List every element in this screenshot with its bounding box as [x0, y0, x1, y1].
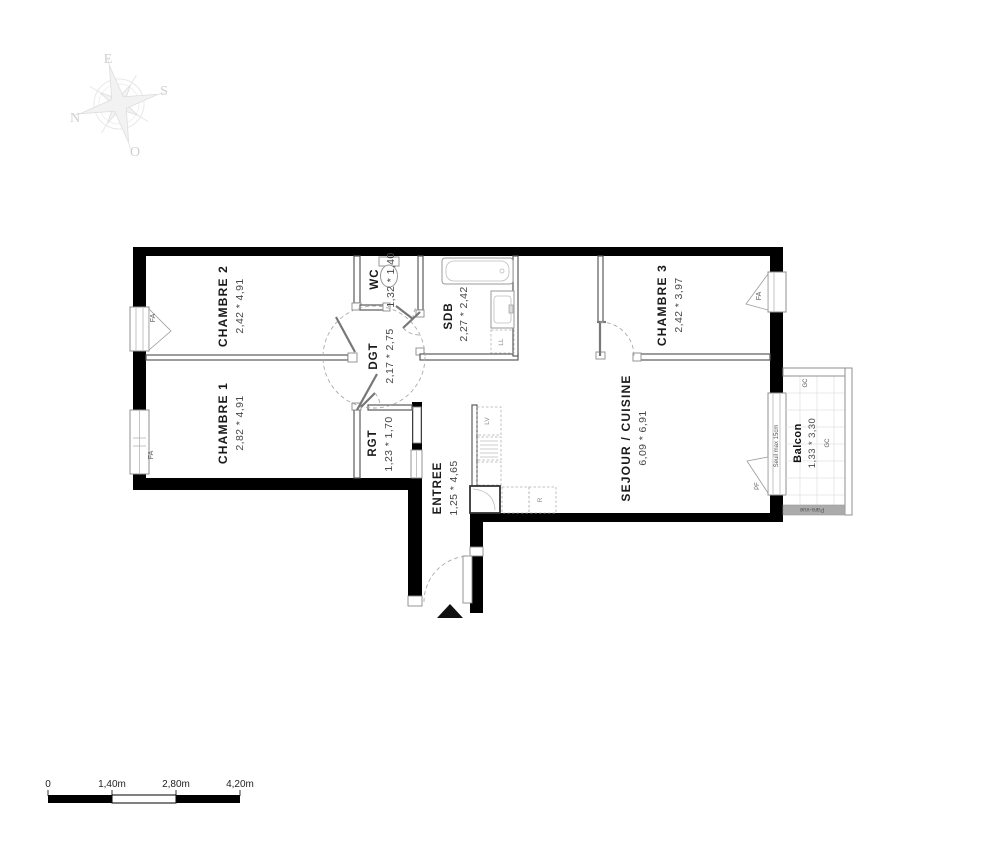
compass-north-label: N — [70, 111, 80, 126]
french-window-sejour: PF Seuil max 15cm — [747, 393, 786, 495]
privacy-screen-label: Pare-vue — [799, 506, 824, 512]
room-rgt-name: RGT — [367, 429, 379, 456]
balcony-rail-top — [783, 368, 852, 376]
room-chambre3-name: CHAMBRE 3 — [655, 264, 669, 346]
room-wc-dims: 1,32 * 1,40 — [385, 252, 397, 307]
scale-tick-label: 2,80m — [162, 779, 190, 790]
entrance-door-leaf — [463, 556, 472, 603]
room-entree-name: ENTREE — [432, 462, 444, 515]
room-chambre2-name: CHAMBRE 2 — [216, 265, 230, 347]
compass-east-label: E — [104, 52, 113, 67]
scale-tick-label: 1,40m — [98, 779, 126, 790]
window-label: FA — [148, 450, 155, 459]
room-balcon-name: Balcon — [792, 423, 804, 463]
compass-west-label: O — [130, 145, 140, 160]
kitchen-sink-icon — [470, 486, 500, 513]
washing-machine-label: LL — [498, 338, 505, 346]
room-balcon-dims: 1,33 * 3,30 — [807, 418, 818, 468]
floor-plan-page: E S N O — [0, 0, 1000, 857]
scale-segment — [48, 795, 112, 803]
wall-chambre3-west — [598, 256, 603, 322]
room-entree-dims: 1,25 * 4,65 — [448, 460, 460, 515]
room-chambre3-dims: 2,42 * 3,97 — [673, 277, 685, 332]
room-chambre1-name: CHAMBRE 1 — [216, 382, 230, 464]
window-chambre1: FA — [130, 410, 155, 474]
wall-chambre2-wc — [354, 256, 360, 303]
window-chambre2: FA — [130, 307, 171, 351]
room-sdb-dims: 2,27 * 2,42 — [458, 286, 470, 341]
scale-bar: 0 1,40m 2,80m 4,20m — [45, 779, 254, 803]
window-chambre3: FA — [746, 272, 786, 312]
scale-segment — [112, 795, 176, 803]
room-dgt-dims: 2,17 * 2,75 — [384, 328, 396, 383]
compass-south-label: S — [160, 84, 168, 99]
window-label: FA — [756, 291, 763, 300]
compass-rose-icon: E S N O — [62, 47, 176, 161]
wall-chambre1-chambre2 — [146, 355, 348, 360]
wall-sdb-west — [418, 256, 423, 310]
scale-segment — [176, 795, 240, 803]
fridge-label: R — [537, 497, 544, 502]
entrance-arrow-icon — [437, 604, 463, 618]
room-chambre2-dims: 2,42 * 4,91 — [234, 278, 246, 333]
room-wc-name: WC — [369, 268, 381, 289]
wall-entree-cuisine — [472, 405, 477, 487]
door-chambre2 — [336, 317, 355, 352]
room-sejour-dims: 6,09 * 6,91 — [637, 410, 649, 465]
room-chambre1-dims: 2,82 * 4,91 — [234, 395, 246, 450]
counter-box — [477, 462, 501, 485]
floor-plan-drawing: E S N O — [0, 0, 1000, 857]
scale-tick-label: 0 — [45, 779, 51, 790]
wall-chambre3-south — [640, 354, 770, 360]
duct-panel — [413, 407, 421, 443]
hob-box — [477, 437, 501, 460]
room-dgt-name: DGT — [368, 342, 380, 369]
french-window-label: PF — [755, 482, 761, 490]
door-wc — [396, 306, 413, 319]
threshold-label: Seuil max 15cm — [774, 425, 780, 468]
room-sdb-name: SDB — [443, 302, 455, 329]
counter-box — [502, 487, 529, 513]
scale-tick-label: 4,20m — [226, 779, 254, 790]
kitchen-fixtures: LV R — [470, 407, 556, 513]
room-rgt-dims: 1,23 * 1,70 — [383, 416, 395, 471]
wall-chambre1-rgt — [354, 410, 360, 478]
room-labels: CHAMBRE 2 2,42 * 4,91 CHAMBRE 1 2,82 * 4… — [216, 252, 685, 515]
window-label: FA — [150, 313, 157, 322]
gc-label: GC — [825, 438, 831, 448]
wall-sdb-south — [420, 354, 518, 360]
room-sejour-name: SEJOUR / CUISINE — [619, 374, 633, 501]
bathtub-icon — [442, 258, 513, 284]
gc-label: GC — [803, 378, 809, 388]
balcony: GC Balcon 1,33 * 3,30 GC Pare-vue — [783, 368, 852, 515]
dishwasher-label: LV — [484, 417, 491, 425]
balcony-rail-right — [845, 368, 852, 515]
